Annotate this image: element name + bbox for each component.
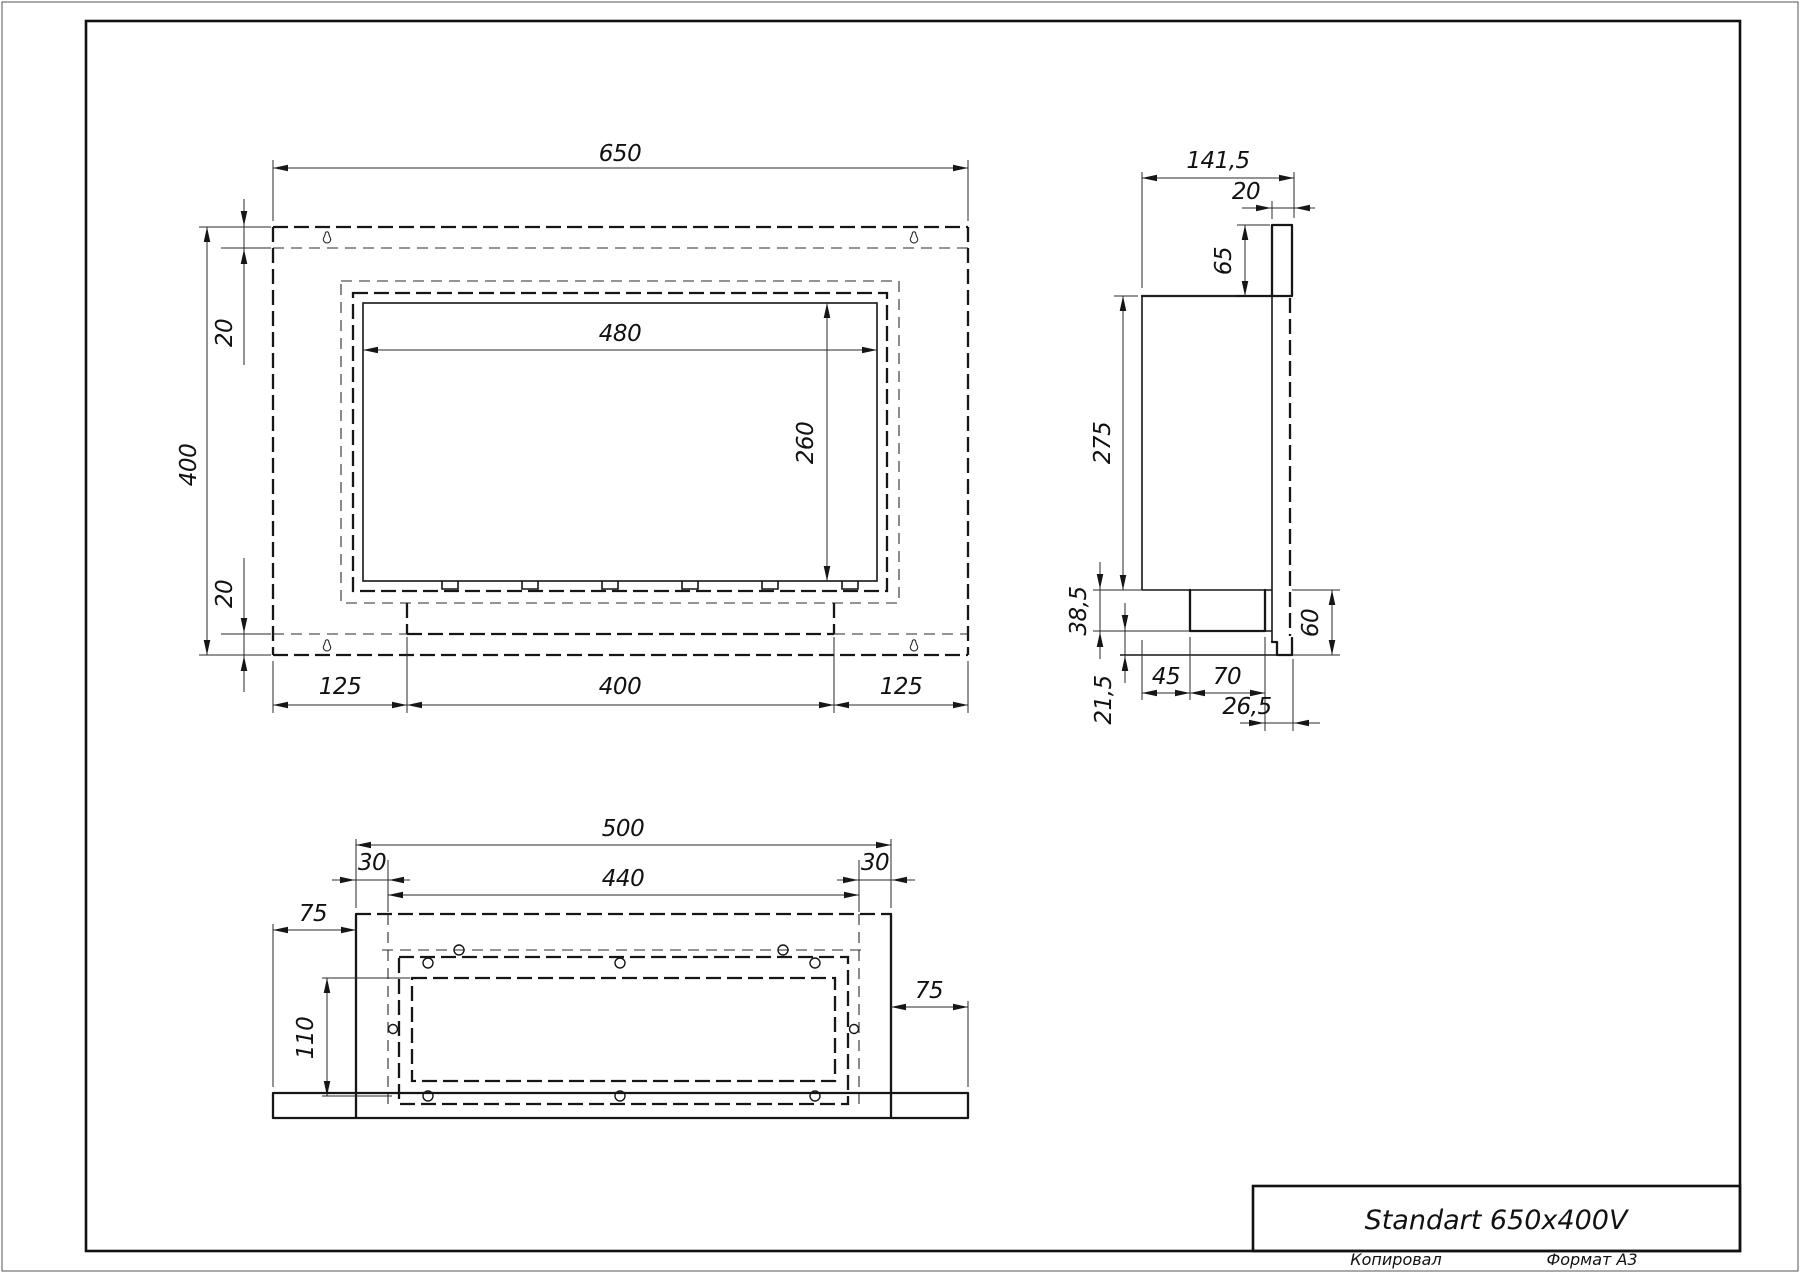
- dim-label-440: 440: [602, 866, 644, 892]
- dim-flange-thickness: 20: [1232, 179, 1315, 219]
- burner-notches: [442, 581, 858, 589]
- dim-label-500: 500: [602, 816, 644, 842]
- dim-inner-width: 440: [388, 866, 859, 895]
- dim-overhang-right: 75: [891, 978, 968, 1087]
- dim-label-125-right: 125: [880, 674, 922, 700]
- dim-flange-top-offset: 65: [1142, 225, 1270, 296]
- fastener-holes: [389, 945, 859, 1101]
- dim-label-21-5: 21,5: [1091, 675, 1117, 724]
- dim-opening-height: 260: [793, 303, 827, 581]
- dim-label-400-bottom: 400: [599, 674, 641, 700]
- dim-label-141-5: 141,5: [1186, 148, 1249, 174]
- dim-label-260: 260: [793, 422, 819, 464]
- dim-label-38-5: 38,5: [1066, 586, 1092, 635]
- dim-label-480: 480: [599, 321, 641, 347]
- dim-label-125-left: 125: [319, 674, 361, 700]
- dim-label-30-right: 30: [861, 850, 889, 876]
- footer-copied-label: Копировал: [1350, 1250, 1441, 1269]
- dim-label-275: 275: [1090, 422, 1116, 464]
- dim-bottom-lip: 21,5: [1091, 603, 1125, 725]
- keyhole-slots: [323, 232, 917, 651]
- dim-label-400: 400: [176, 444, 202, 486]
- dim-label-20-top: 20: [212, 319, 238, 347]
- dim-tray-depth: 110: [293, 978, 410, 1096]
- technical-drawing: 650 400 20 20 480: [0, 0, 1800, 1273]
- footer-format-label: Формат A3: [1546, 1250, 1637, 1269]
- dim-label-45: 45: [1152, 664, 1180, 690]
- dim-burner-height: 38,5: [1066, 562, 1190, 659]
- front-view: 650 400 20 20 480: [176, 141, 968, 713]
- dim-bottom-height: 60: [1292, 590, 1340, 655]
- dim-front-width: 650: [273, 141, 968, 221]
- title-block: Standart 650x400V Копировал Формат A3: [1253, 1186, 1740, 1269]
- dim-bracket-width: 500: [356, 816, 891, 908]
- page-frame: [2, 2, 1798, 1271]
- dim-label-20-side: 20: [1232, 179, 1260, 205]
- tray-inner: [412, 978, 835, 1081]
- dim-label-75-right: 75: [915, 978, 943, 1004]
- drawing-title: Standart 650x400V: [1365, 1205, 1630, 1236]
- dim-body-height: 275: [1090, 296, 1142, 590]
- dim-front-top-inset: 20: [212, 199, 271, 365]
- dim-label-650: 650: [599, 141, 641, 167]
- dim-front-bottom-inset: 20: [212, 558, 271, 692]
- dim-label-26-5: 26,5: [1222, 694, 1271, 720]
- dim-label-30-left: 30: [358, 850, 386, 876]
- bottom-view: 500 30 30 440 75 110: [273, 816, 968, 1118]
- dim-front-bottom-row: 125 400 125: [273, 637, 968, 713]
- drawing-page: 650 400 20 20 480: [0, 0, 1800, 1273]
- dim-label-65: 65: [1211, 247, 1237, 275]
- dim-label-110: 110: [293, 1017, 319, 1059]
- dim-label-75-left: 75: [299, 901, 327, 927]
- dim-opening-width: 480: [363, 321, 877, 350]
- dim-label-60: 60: [1298, 609, 1324, 637]
- dim-label-70: 70: [1213, 664, 1241, 690]
- dim-label-20-bottom: 20: [212, 580, 238, 608]
- side-view: 141,5 20 65 275 38,5: [1066, 148, 1340, 731]
- bottom-outline: [273, 914, 968, 1118]
